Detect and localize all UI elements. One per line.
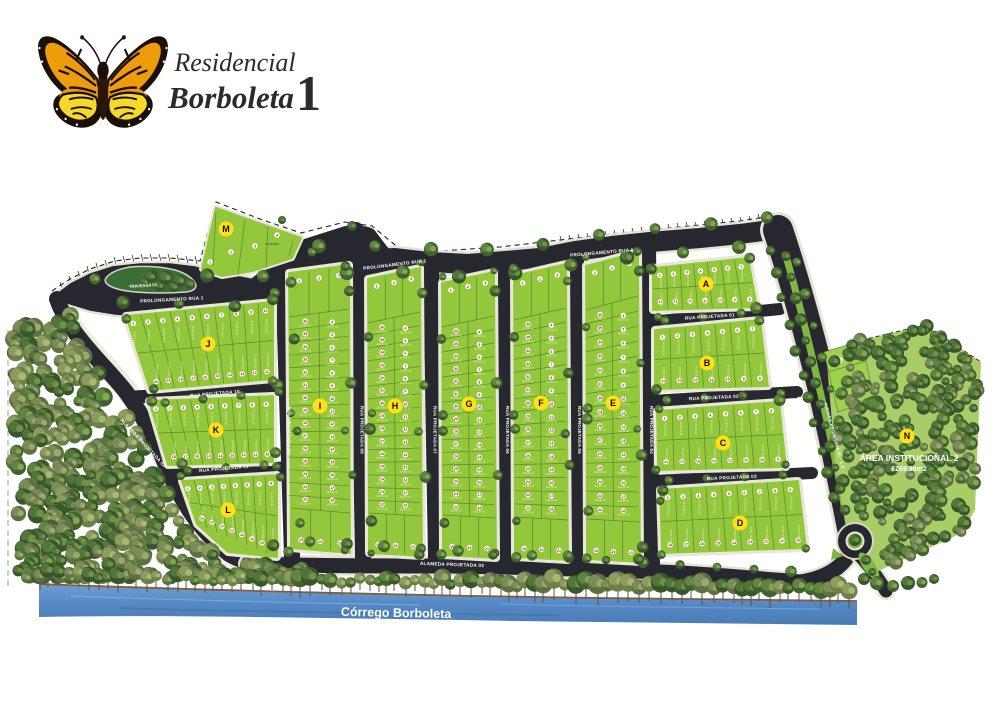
svg-text:1: 1: [376, 284, 378, 288]
svg-text:24.00 X 9.16: 24.00 X 9.16: [713, 270, 716, 284]
svg-text:5: 5: [550, 337, 552, 341]
svg-text:220.00 m2: 220.00 m2: [618, 500, 630, 503]
svg-text:15: 15: [330, 460, 334, 464]
svg-text:20: 20: [319, 540, 323, 544]
svg-text:12: 12: [330, 422, 334, 426]
svg-text:17: 17: [549, 494, 553, 498]
svg-text:4: 4: [404, 326, 406, 330]
svg-text:220.00 m2: 220.00 m2: [522, 327, 534, 330]
svg-text:220.00 m2: 220.00 m2: [300, 324, 312, 327]
svg-text:220.00 m2: 220.00 m2: [618, 430, 630, 433]
svg-text:24.00 X 9.16: 24.00 X 9.16: [717, 528, 720, 542]
svg-text:Residencial: Residencial: [173, 48, 295, 77]
svg-text:220.00 m2: 220.00 m2: [327, 325, 339, 328]
svg-text:220.00 m2: 220.00 m2: [400, 420, 412, 423]
svg-text:ÁREA INSTITUCIONAL 2: ÁREA INSTITUCIONAL 2: [860, 453, 959, 463]
svg-text:220.00 m2: 220.00 m2: [594, 443, 606, 446]
svg-text:13: 13: [230, 454, 234, 458]
svg-text:15: 15: [403, 466, 407, 470]
svg-text:15: 15: [621, 467, 625, 471]
svg-text:220.00 m2: 220.00 m2: [522, 433, 534, 436]
svg-text:19: 19: [522, 547, 526, 551]
svg-text:220.00 m2: 220.00 m2: [300, 401, 312, 404]
svg-text:24.00 X 9.16: 24.00 X 9.16: [201, 508, 204, 522]
svg-text:220.00 m2: 220.00 m2: [450, 372, 462, 375]
svg-text:3: 3: [254, 244, 256, 248]
svg-text:10: 10: [330, 397, 334, 401]
svg-text:25: 25: [526, 467, 530, 471]
svg-text:18: 18: [172, 455, 176, 459]
svg-text:10: 10: [265, 453, 269, 457]
svg-text:35: 35: [526, 336, 530, 340]
svg-text:24.00 X 9.16: 24.00 X 9.16: [765, 526, 768, 540]
svg-text:24.00 X 9.16: 24.00 X 9.16: [224, 411, 227, 425]
svg-text:24.00 X 9.16: 24.00 X 9.16: [162, 328, 165, 342]
svg-text:220.00 m2: 220.00 m2: [376, 444, 388, 447]
svg-text:24.00 X 9.16: 24.00 X 9.16: [223, 491, 226, 505]
svg-text:7: 7: [759, 490, 761, 494]
svg-text:220.00 m2: 220.00 m2: [618, 347, 630, 350]
svg-text:24.00 X 9.16: 24.00 X 9.16: [734, 289, 737, 303]
svg-text:8: 8: [235, 312, 237, 316]
svg-text:24.00 X 9.16: 24.00 X 9.16: [217, 358, 220, 372]
svg-text:7: 7: [622, 356, 624, 360]
svg-text:24.00 X 9.16: 24.00 X 9.16: [777, 444, 780, 458]
svg-text:220.00 m2: 220.00 m2: [450, 497, 462, 500]
svg-text:24.00 X 9.16: 24.00 X 9.16: [694, 366, 697, 380]
svg-text:24: 24: [380, 477, 384, 481]
svg-text:35: 35: [303, 332, 307, 336]
svg-text:7: 7: [752, 327, 754, 331]
svg-text:24.00 X 9.16: 24.00 X 9.16: [697, 501, 700, 515]
svg-text:1: 1: [155, 407, 157, 411]
svg-text:10: 10: [796, 539, 800, 543]
svg-text:220.00 m2: 220.00 m2: [522, 446, 534, 449]
svg-text:220.00 m2: 220.00 m2: [300, 350, 312, 353]
svg-text:30: 30: [454, 405, 458, 409]
svg-text:220.00 m2: 220.00 m2: [594, 415, 606, 418]
svg-text:24.00 X 9.16: 24.00 X 9.16: [665, 448, 668, 462]
svg-text:13: 13: [549, 442, 553, 446]
svg-text:29: 29: [526, 414, 530, 418]
svg-text:24.00 X 9.16: 24.00 X 9.16: [759, 363, 762, 377]
svg-text:24.00 X 9.16: 24.00 X 9.16: [265, 319, 268, 333]
svg-text:220.00 m2: 220.00 m2: [522, 419, 534, 422]
svg-text:5: 5: [404, 339, 406, 343]
svg-text:220.00 m2: 220.00 m2: [618, 361, 630, 364]
svg-text:24.00 X 9.16: 24.00 X 9.16: [169, 413, 172, 427]
svg-text:24.00 X 9.16: 24.00 X 9.16: [678, 366, 681, 380]
svg-text:24: 24: [454, 480, 458, 484]
svg-text:24.00 X 9.16: 24.00 X 9.16: [719, 290, 722, 304]
svg-text:19: 19: [166, 379, 170, 383]
svg-text:24.00 X 9.16: 24.00 X 9.16: [235, 322, 238, 336]
svg-text:16: 16: [203, 375, 207, 379]
svg-text:5: 5: [722, 330, 724, 334]
svg-text:220.00 m2: 220.00 m2: [376, 495, 388, 498]
svg-text:220.00 m2: 220.00 m2: [594, 373, 606, 376]
svg-text:220.00 m2: 220.00 m2: [300, 464, 312, 467]
svg-text:220.00 m2: 220.00 m2: [450, 510, 462, 513]
svg-text:4: 4: [196, 405, 198, 409]
svg-text:36: 36: [303, 319, 307, 323]
svg-text:24.00 X 9.16: 24.00 X 9.16: [241, 356, 244, 370]
svg-text:1: 1: [667, 496, 669, 500]
svg-text:28: 28: [598, 424, 602, 428]
svg-text:19: 19: [299, 538, 303, 542]
svg-text:D: D: [737, 518, 744, 528]
svg-text:26: 26: [303, 447, 307, 451]
svg-text:220.00 m2: 220.00 m2: [522, 485, 534, 488]
svg-text:24.00 X 9.16: 24.00 X 9.16: [167, 363, 170, 377]
svg-text:24.00 X 9.16: 24.00 X 9.16: [180, 362, 183, 376]
svg-text:7: 7: [258, 482, 260, 486]
svg-text:24: 24: [598, 480, 602, 484]
svg-text:4: 4: [478, 330, 480, 334]
svg-text:26: 26: [526, 454, 530, 458]
svg-text:24.00 X 9.16: 24.00 X 9.16: [238, 411, 241, 425]
svg-text:220.00 m2: 220.00 m2: [474, 360, 486, 363]
svg-text:220.00 m2: 220.00 m2: [474, 498, 486, 501]
svg-text:4: 4: [331, 320, 333, 324]
svg-text:12: 12: [477, 431, 481, 435]
svg-text:220.00 m2: 220.00 m2: [300, 363, 312, 366]
svg-text:23: 23: [380, 490, 384, 494]
svg-text:7: 7: [478, 368, 480, 372]
svg-text:24.00 X 9.16: 24.00 X 9.16: [743, 364, 746, 378]
svg-text:24.00 X 9.16: 24.00 X 9.16: [729, 446, 732, 460]
svg-text:24.00 X 9.16: 24.00 X 9.16: [659, 275, 662, 289]
svg-text:220.00 m2: 220.00 m2: [376, 368, 388, 371]
svg-text:24.00 X 9.16: 24.00 X 9.16: [234, 491, 237, 505]
svg-text:1: 1: [209, 260, 211, 264]
svg-text:24.00 X 9.16: 24.00 X 9.16: [677, 340, 680, 354]
svg-text:16: 16: [700, 542, 704, 546]
svg-text:12: 12: [240, 533, 244, 537]
svg-text:28: 28: [303, 421, 307, 425]
svg-text:26: 26: [598, 452, 602, 456]
svg-text:33: 33: [526, 362, 530, 366]
svg-text:24.00 X 9.16: 24.00 X 9.16: [206, 324, 209, 338]
svg-text:22: 22: [526, 506, 530, 510]
svg-text:24.00 X 9.16: 24.00 X 9.16: [697, 447, 700, 461]
svg-text:11: 11: [621, 411, 625, 415]
svg-text:220.00 m2: 220.00 m2: [327, 478, 339, 481]
svg-text:220.00 m2: 220.00 m2: [474, 373, 486, 376]
svg-text:220.00 m2: 220.00 m2: [522, 367, 534, 370]
svg-text:220.00 m2: 220.00 m2: [300, 477, 312, 480]
svg-text:24.00 X 9.16: 24.00 X 9.16: [132, 331, 135, 345]
svg-text:220.00 m2: 220.00 m2: [618, 514, 630, 517]
svg-text:24.00 X 9.16: 24.00 X 9.16: [797, 525, 800, 539]
svg-text:K: K: [213, 425, 220, 435]
svg-text:10: 10: [760, 458, 764, 462]
svg-text:24.00 X 9.16: 24.00 X 9.16: [704, 290, 707, 304]
svg-text:220.00 m2: 220.00 m2: [327, 427, 339, 430]
svg-text:16: 16: [549, 481, 553, 485]
svg-text:220.00 m2: 220.00 m2: [450, 409, 462, 412]
svg-text:17: 17: [621, 495, 625, 499]
svg-text:13: 13: [240, 372, 244, 376]
svg-text:220.00 m2: 220.00 m2: [474, 335, 486, 338]
svg-text:220.00 m2: 220.00 m2: [594, 332, 606, 335]
svg-text:13: 13: [621, 439, 625, 443]
svg-text:33: 33: [598, 355, 602, 359]
svg-text:220.00 m2: 220.00 m2: [327, 504, 339, 507]
svg-text:24.00 X 9.16: 24.00 X 9.16: [191, 326, 194, 340]
svg-text:220.00 m2: 220.00 m2: [618, 458, 630, 461]
svg-text:24.00 X 9.16: 24.00 X 9.16: [659, 292, 662, 306]
svg-text:5: 5: [725, 412, 727, 416]
svg-text:25: 25: [454, 467, 458, 471]
svg-text:24.00 X 9.16: 24.00 X 9.16: [211, 511, 214, 525]
svg-text:220.00 m2: 220.00 m2: [594, 429, 606, 432]
svg-text:Borboleta: Borboleta: [167, 80, 294, 115]
svg-text:220.00 m2: 220.00 m2: [594, 471, 606, 474]
svg-text:3: 3: [694, 415, 696, 419]
svg-text:RUA PROJETADA 06: RUA PROJETADA 06: [505, 406, 510, 454]
svg-text:17: 17: [184, 455, 188, 459]
svg-text:31: 31: [380, 389, 384, 393]
svg-text:220.00 m2: 220.00 m2: [327, 376, 339, 379]
svg-text:9: 9: [622, 383, 624, 387]
svg-text:1: 1: [662, 336, 664, 340]
svg-text:21: 21: [485, 547, 489, 551]
svg-text:18: 18: [403, 504, 407, 508]
svg-text:9: 9: [743, 377, 745, 381]
svg-text:7: 7: [331, 359, 333, 363]
svg-text:24.00 X 9.16: 24.00 X 9.16: [713, 447, 716, 461]
svg-text:24.00 X 9.16: 24.00 X 9.16: [211, 490, 214, 504]
svg-text:11: 11: [549, 415, 553, 419]
svg-text:220.00 m2: 220.00 m2: [450, 347, 462, 350]
svg-text:220.00 m2: 220.00 m2: [474, 436, 486, 439]
svg-text:3: 3: [338, 274, 340, 278]
svg-text:25: 25: [598, 466, 602, 470]
svg-text:220.00 m2: 220.00 m2: [450, 435, 462, 438]
svg-text:3: 3: [692, 333, 694, 337]
svg-text:E: E: [610, 398, 616, 408]
svg-text:220.00 m2: 220.00 m2: [300, 439, 312, 442]
svg-text:2: 2: [677, 334, 679, 338]
svg-text:220.00 m2: 220.00 m2: [618, 486, 630, 489]
svg-text:26: 26: [454, 455, 458, 459]
svg-text:29: 29: [380, 414, 384, 418]
svg-text:220.00 m2: 220.00 m2: [522, 406, 534, 409]
svg-text:13: 13: [477, 443, 481, 447]
svg-text:6: 6: [206, 315, 208, 319]
svg-text:5: 5: [728, 492, 730, 496]
svg-text:1: 1: [132, 322, 134, 326]
svg-text:RUA PROJETADA 07: RUA PROJETADA 07: [433, 406, 438, 454]
svg-text:15: 15: [477, 468, 481, 472]
svg-text:16: 16: [403, 478, 407, 482]
svg-text:24.00 X 9.16: 24.00 X 9.16: [689, 291, 692, 305]
svg-text:220.00 m2: 220.00 m2: [300, 375, 312, 378]
svg-text:24.00 X 9.16: 24.00 X 9.16: [199, 490, 202, 504]
svg-text:220.00 m2: 220.00 m2: [450, 397, 462, 400]
svg-text:24.00 X 9.16: 24.00 X 9.16: [737, 336, 740, 350]
svg-text:24.00 X 9.16: 24.00 X 9.16: [713, 500, 716, 514]
svg-text:220.00 m2: 220.00 m2: [327, 414, 339, 417]
svg-text:15: 15: [716, 541, 720, 545]
svg-text:24.00 X 9.16: 24.00 X 9.16: [251, 522, 254, 536]
svg-text:24.00 X 9.16: 24.00 X 9.16: [196, 412, 199, 426]
svg-text:12: 12: [764, 540, 768, 544]
svg-text:220.00 m2: 220.00 m2: [400, 369, 412, 372]
svg-text:34: 34: [303, 345, 307, 349]
svg-text:220.00 m2: 220.00 m2: [300, 490, 312, 493]
svg-text:2: 2: [467, 285, 469, 289]
svg-text:220.00 m2: 220.00 m2: [474, 448, 486, 451]
svg-text:26: 26: [380, 452, 384, 456]
svg-text:23: 23: [454, 492, 458, 496]
svg-text:24.00 X 9.16: 24.00 X 9.16: [728, 499, 731, 513]
svg-text:14: 14: [219, 454, 223, 458]
svg-text:6: 6: [404, 352, 406, 356]
svg-text:17: 17: [477, 493, 481, 497]
svg-text:15: 15: [207, 454, 211, 458]
svg-text:34: 34: [598, 341, 602, 345]
svg-text:34: 34: [526, 349, 530, 353]
svg-text:220.00 m2: 220.00 m2: [546, 499, 558, 502]
svg-text:220.00 m2: 220.00 m2: [450, 472, 462, 475]
svg-text:220.00 m2: 220.00 m2: [546, 473, 558, 476]
svg-text:220.00 m2: 220.00 m2: [546, 486, 558, 489]
svg-text:28: 28: [454, 430, 458, 434]
svg-text:29: 29: [454, 417, 458, 421]
svg-text:220.00 m2: 220.00 m2: [450, 447, 462, 450]
svg-text:8: 8: [478, 380, 480, 384]
svg-text:220.00 m2: 220.00 m2: [400, 344, 412, 347]
svg-text:C: C: [720, 438, 727, 448]
svg-text:36: 36: [454, 329, 458, 333]
svg-text:5: 5: [478, 343, 480, 347]
svg-text:24.00 X 9.16: 24.00 X 9.16: [740, 418, 743, 432]
svg-text:35: 35: [598, 327, 602, 331]
svg-text:12: 12: [253, 371, 257, 375]
svg-text:24.00 X 9.16: 24.00 X 9.16: [243, 440, 246, 454]
svg-text:24.00 X 9.16: 24.00 X 9.16: [701, 529, 704, 543]
svg-text:220.00 m2: 220.00 m2: [400, 382, 412, 385]
svg-text:7: 7: [404, 364, 406, 368]
svg-text:30: 30: [303, 396, 307, 400]
svg-text:11: 11: [477, 418, 481, 422]
svg-text:32: 32: [598, 369, 602, 373]
svg-text:220.00 m2: 220.00 m2: [474, 473, 486, 476]
svg-text:220.00 m2: 220.00 m2: [327, 465, 339, 468]
svg-text:220.00 m2: 220.00 m2: [618, 333, 630, 336]
svg-text:220.00 m2: 220.00 m2: [450, 422, 462, 425]
svg-text:24.00 X 9.16: 24.00 X 9.16: [155, 414, 158, 428]
svg-text:6: 6: [740, 411, 742, 415]
svg-text:17: 17: [330, 486, 334, 490]
svg-text:2: 2: [393, 281, 395, 285]
svg-text:220.00 m2: 220.00 m2: [474, 348, 486, 351]
svg-text:20: 20: [154, 380, 158, 384]
svg-text:24.00 X 9.16: 24.00 X 9.16: [745, 445, 748, 459]
svg-text:4: 4: [622, 314, 624, 318]
svg-text:220.00 m2: 220.00 m2: [522, 380, 534, 383]
svg-text:24.00 X 9.16: 24.00 X 9.16: [173, 442, 176, 456]
svg-text:220.00 m2: 220.00 m2: [594, 513, 606, 516]
svg-text:220.00 m2: 220.00 m2: [522, 341, 534, 344]
svg-text:4: 4: [176, 317, 178, 321]
svg-text:32: 32: [526, 375, 530, 379]
svg-text:6: 6: [743, 491, 745, 495]
svg-text:6: 6: [737, 328, 739, 332]
svg-text:6269.96m2: 6269.96m2: [891, 466, 927, 473]
svg-text:6: 6: [331, 346, 333, 350]
svg-text:2: 2: [679, 416, 681, 420]
svg-text:29: 29: [598, 410, 602, 414]
svg-text:12: 12: [403, 428, 407, 432]
svg-text:10: 10: [621, 397, 625, 401]
svg-text:M: M: [222, 224, 230, 234]
svg-text:24.00 X 9.16: 24.00 X 9.16: [155, 364, 158, 378]
svg-text:24: 24: [303, 472, 307, 476]
svg-text:220.00 m2: 220.00 m2: [522, 393, 534, 396]
svg-text:220.00 m2: 220.00 m2: [450, 359, 462, 362]
svg-text:31: 31: [598, 382, 602, 386]
svg-text:24.00 X 9.16: 24.00 X 9.16: [667, 503, 670, 517]
svg-text:33: 33: [380, 363, 384, 367]
svg-text:24.00 X 9.16: 24.00 X 9.16: [709, 420, 712, 434]
svg-text:220.00 m2: 220.00 m2: [618, 319, 630, 322]
svg-text:35: 35: [454, 342, 458, 346]
svg-text:28: 28: [380, 427, 384, 431]
svg-text:7: 7: [238, 404, 240, 408]
svg-text:24.00 X 9.16: 24.00 X 9.16: [221, 323, 224, 337]
svg-text:23: 23: [598, 494, 602, 498]
svg-text:31: 31: [303, 383, 307, 387]
svg-text:24.00 X 9.16: 24.00 X 9.16: [147, 330, 150, 344]
svg-text:18: 18: [549, 507, 553, 511]
svg-text:220.00 m2: 220.00 m2: [327, 491, 339, 494]
svg-text:5: 5: [234, 484, 236, 488]
svg-text:6: 6: [478, 355, 480, 359]
svg-text:220.00 m2: 220.00 m2: [450, 485, 462, 488]
svg-text:27: 27: [526, 441, 530, 445]
svg-text:RUA PROJETADA 04: RUA PROJETADA 04: [649, 406, 654, 454]
svg-text:4: 4: [223, 485, 225, 489]
svg-text:3: 3: [484, 281, 486, 285]
svg-text:24.00 X 9.16: 24.00 X 9.16: [662, 341, 665, 355]
svg-text:220.00 m2: 220.00 m2: [376, 482, 388, 485]
svg-text:7: 7: [550, 363, 552, 367]
svg-text:23: 23: [526, 493, 530, 497]
svg-text:8: 8: [759, 377, 761, 381]
svg-text:220.00 m2: 220.00 m2: [327, 364, 339, 367]
svg-text:16: 16: [477, 481, 481, 485]
svg-text:G: G: [465, 399, 472, 409]
svg-text:19: 19: [594, 549, 598, 553]
svg-text:24.00 X 9.16: 24.00 X 9.16: [759, 497, 762, 511]
svg-text:29: 29: [303, 409, 307, 413]
svg-text:21: 21: [557, 549, 561, 553]
svg-text:220.00 m2: 220.00 m2: [327, 351, 339, 354]
svg-text:220.00 m2: 220.00 m2: [546, 342, 558, 345]
svg-text:32: 32: [303, 370, 307, 374]
svg-text:5: 5: [210, 405, 212, 409]
svg-text:220.00 m2: 220.00 m2: [474, 410, 486, 413]
svg-text:220.00 m2: 220.00 m2: [327, 440, 339, 443]
svg-text:220.00 m2: 220.00 m2: [450, 334, 462, 337]
svg-text:17: 17: [684, 543, 688, 547]
svg-text:30: 30: [526, 401, 530, 405]
svg-text:220.00 m2: 220.00 m2: [400, 458, 412, 461]
svg-text:220.00 m2: 220.00 m2: [300, 452, 312, 455]
